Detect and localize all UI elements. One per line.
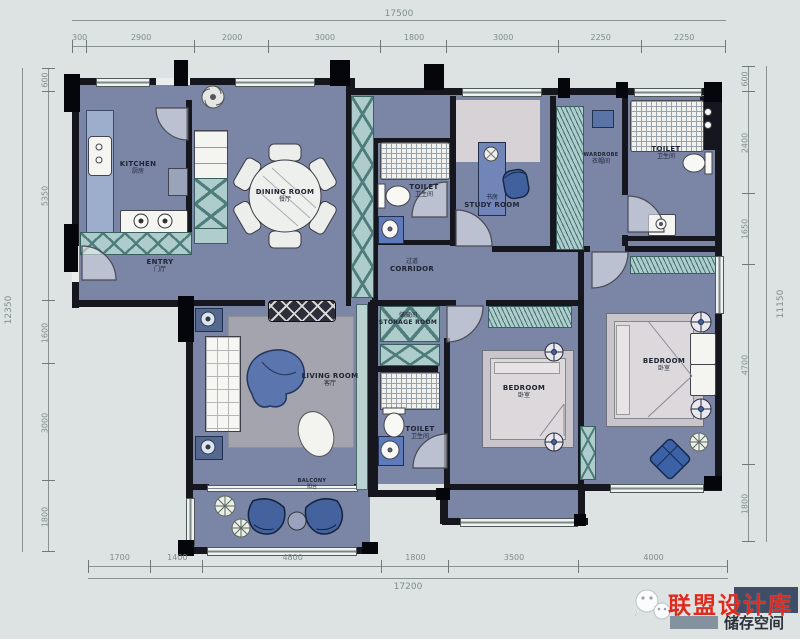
window [96, 78, 150, 87]
wall-corner [64, 74, 80, 112]
wall-unit [195, 436, 223, 460]
room-label-storage: STORAGE ROOM 储藏间 [379, 312, 437, 326]
wall [622, 96, 628, 195]
wall [625, 246, 722, 252]
vanity-sink [648, 214, 676, 236]
tufted-bench [268, 300, 336, 322]
dim-value: 4700 [741, 355, 750, 375]
dim-bottom-segments: 1700 1400 4800 1800 3500 4000 [88, 552, 728, 574]
room-label-bedroom-mid: BEDROOM 卧室 [503, 384, 545, 400]
window [186, 498, 195, 546]
dim-segment: 1650 [734, 194, 756, 264]
dim-value: 1600 [41, 322, 50, 342]
dim-segment: 2900 [87, 32, 195, 54]
stool [592, 110, 614, 128]
window [715, 256, 724, 314]
bathtub [380, 142, 450, 180]
room-label-dining: DINING ROOM 餐厅 [256, 188, 314, 204]
dining-cabinet-low [194, 228, 228, 244]
room-name-zh: 卫生间 [409, 191, 438, 198]
room-label-corridor: CORRIDOR 过道 [390, 258, 434, 274]
wall-corner [64, 224, 78, 272]
shower [380, 372, 440, 410]
wall [444, 338, 450, 492]
wall [193, 300, 265, 306]
wall [448, 484, 578, 490]
wall-corner [558, 78, 570, 98]
dim-segment: 4800 [203, 552, 382, 574]
sink-cabinet [378, 436, 404, 466]
window [462, 88, 542, 97]
room-label-entry: ENTRY 门厅 [147, 258, 174, 274]
dim-value: 1650 [741, 219, 750, 239]
room-name-zh: 衣帽间 [584, 158, 619, 165]
window-bench [630, 256, 716, 274]
sofa [205, 336, 241, 432]
stove [120, 210, 188, 234]
dim-segment: 3000 [34, 364, 56, 482]
dim-value: 1400 [151, 553, 203, 562]
dim-segment: 1400 [151, 552, 203, 574]
dim-segment: 300 [72, 32, 87, 54]
dim-segment: 600 [34, 68, 56, 92]
dim-value: 2250 [642, 33, 726, 42]
dim-value: 2250 [559, 33, 643, 42]
bedroom-wardrobe-hangers [488, 306, 572, 328]
dim-value: 1800 [41, 507, 50, 527]
dim-value: 2400 [741, 133, 750, 153]
dim-segment: 2250 [559, 32, 643, 54]
dim-segment: 4000 [579, 552, 728, 574]
dim-value: 1800 [381, 33, 448, 42]
fridge [168, 168, 188, 196]
room-label-balcony: BALCONY 阳台 [298, 478, 327, 490]
dim-value: 2900 [87, 33, 195, 42]
dim-left-segments: 600 5350 1600 3000 1800 [34, 68, 56, 552]
wall [72, 300, 193, 307]
window [235, 78, 315, 87]
dim-segment: 1800 [734, 465, 756, 542]
dim-value: 12350 [4, 296, 14, 325]
room-label-toilet-mid: TOILET 卫生间 [409, 183, 438, 199]
sink-cabinet [378, 216, 404, 244]
nightstand-box [690, 333, 716, 365]
room-name-zh: 阳台 [298, 484, 327, 490]
room-label-living: LIVING ROOM 客厅 [302, 372, 359, 388]
wall [622, 236, 720, 241]
dim-value: 300 [72, 33, 87, 42]
room-label-toilet-bottom: TOILET 卫生间 [405, 425, 434, 441]
room-name-zh: 过道 [390, 258, 434, 265]
floor-plan-canvas: { "colors": {"background":"#dde3e2","flo… [0, 0, 800, 639]
room-label-kitchen: KITCHEN 厨房 [120, 160, 157, 176]
dim-value: 600 [41, 72, 50, 87]
dim-value: 3500 [449, 553, 579, 562]
dim-total-left: 12350 [22, 68, 23, 552]
dim-value: 1700 [88, 553, 151, 562]
dim-value: 1800 [382, 553, 449, 562]
wardrobe-closet [556, 106, 584, 250]
entry-shoe-cabinet [80, 232, 192, 255]
room-name-zh: 书房 [464, 194, 520, 201]
wall-corner [436, 488, 450, 500]
wall-corner [424, 64, 444, 90]
watermark-gray-box [670, 616, 718, 629]
dim-value: 17200 [394, 582, 423, 592]
wall-corner [704, 82, 722, 102]
wall-unit [195, 308, 223, 332]
dim-segment: 3000 [447, 32, 558, 54]
window [610, 484, 704, 493]
dim-value: 5350 [41, 186, 50, 206]
window [460, 518, 578, 527]
dim-value: 2000 [195, 33, 269, 42]
room-name-zh: 厨房 [120, 168, 157, 175]
storage-cabinet [380, 344, 440, 366]
dim-segment: 3000 [269, 32, 380, 54]
dim-value: 600 [741, 71, 750, 86]
wechat-icon [635, 590, 670, 619]
watermark-subtitle: 储存空间 [724, 612, 784, 633]
wall-corner [704, 476, 722, 490]
room-label-toilet-top-right: TOILET 卫生间 [651, 145, 680, 161]
dim-segment: 3500 [449, 552, 579, 574]
dim-value: 3000 [447, 33, 558, 42]
wall [368, 302, 378, 492]
dim-value: 3000 [41, 412, 50, 432]
dim-segment: 2250 [642, 32, 726, 54]
window [634, 88, 702, 97]
room-label-bedroom-right: BEDROOM 卧室 [643, 357, 685, 373]
dim-segment: 1800 [381, 32, 448, 54]
room-name-zh: 储藏间 [379, 312, 437, 319]
wall-corner [174, 60, 188, 86]
room-name-zh: 卧室 [643, 365, 685, 372]
kitchen-sink [88, 136, 112, 176]
dim-top-segments: 300 2900 2000 3000 1800 3000 2250 2250 [72, 32, 726, 54]
dim-segment: 1600 [34, 301, 56, 364]
room-label-study: STUDY ROOM 书房 [464, 194, 520, 210]
room-name-zh: 餐厅 [256, 196, 314, 203]
dim-value: 4000 [579, 553, 728, 562]
room-name-zh: 卧室 [503, 392, 545, 399]
dim-segment: 1800 [34, 481, 56, 552]
dim-segment: 1700 [88, 552, 151, 574]
dim-value: 3000 [269, 33, 380, 42]
room-name-en: STORAGE ROOM [379, 319, 437, 326]
dim-right-segments: 600 2400 1650 4700 1800 [734, 66, 756, 542]
dim-segment: 5350 [34, 92, 56, 302]
wall-corner [616, 82, 628, 98]
dim-segment: 2000 [195, 32, 269, 54]
room-name-en: CORRIDOR [390, 265, 434, 273]
room-name-zh: 卫生间 [651, 153, 680, 160]
wall-corner [330, 60, 350, 86]
room-name-en: STUDY ROOM [464, 201, 520, 209]
wall-corner [574, 514, 586, 526]
window-sliding [207, 485, 358, 492]
corridor-cabinet [351, 96, 374, 298]
bed-pillow [616, 325, 630, 415]
room-name-zh: 门厅 [147, 266, 174, 273]
bedroom-cabinet-x [580, 426, 596, 480]
room-name-zh: 客厅 [302, 380, 359, 387]
dim-segment: 2400 [734, 92, 756, 194]
glass-partition [356, 304, 368, 490]
dim-segment: 4700 [734, 265, 756, 466]
dim-value: 17500 [385, 9, 414, 19]
floor-balcony [193, 484, 370, 547]
bed-pillow [494, 362, 560, 374]
dining-cabinet [194, 130, 228, 180]
room-name-zh: 卫生间 [405, 433, 434, 440]
dim-total-bottom: 17200 [88, 578, 728, 579]
room-label-wardrobe: WARDROBE 衣帽间 [584, 152, 619, 165]
dim-value: 11150 [776, 290, 786, 319]
nightstand-box [690, 364, 716, 396]
dim-segment: 600 [734, 66, 756, 92]
dim-value: 4800 [203, 553, 382, 562]
dim-total-top: 17500 [72, 20, 726, 21]
dim-value: 1800 [741, 493, 750, 513]
wall-corner [178, 296, 194, 342]
dim-total-right: 11150 [766, 66, 767, 542]
dining-cabinet-x [194, 178, 228, 230]
dim-segment: 1800 [382, 552, 449, 574]
